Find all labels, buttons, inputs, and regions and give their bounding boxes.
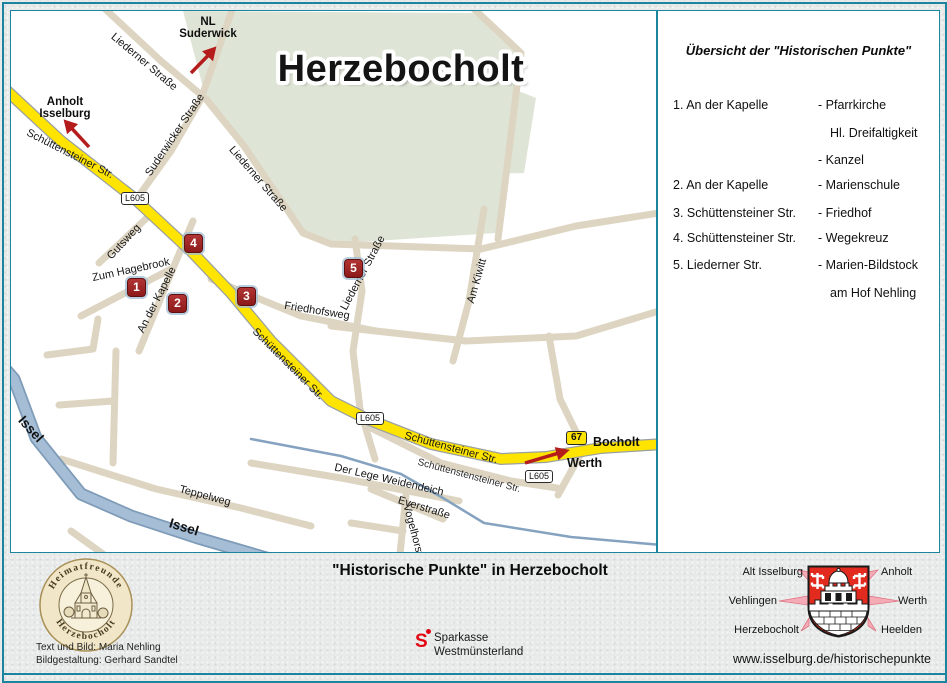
legend-row: 4. Schüttensteiner Str. - Wegekreuz xyxy=(658,231,939,248)
seal-graphic: Heimatfreunde Herzebocholt xyxy=(38,557,134,653)
sponsor-name: Sparkasse Westmünsterland xyxy=(434,632,523,659)
legend-place: 3. Schüttensteiner Str. xyxy=(673,206,796,220)
legend-row: am Hof Nehling xyxy=(658,286,939,303)
destination-line: NL xyxy=(163,16,253,28)
legend-place: 5. Liederner Str. xyxy=(673,258,762,272)
sponsor-line: Westmünsterland xyxy=(434,646,523,660)
crest-label-alt-isselburg: Alt Isselburg xyxy=(729,566,803,578)
legend-desc: am Hof Nehling xyxy=(830,286,916,300)
website-url: www.isselburg.de/historischepunkte xyxy=(723,652,941,666)
crest-label-anholt: Anholt xyxy=(881,566,912,578)
map-marker-4: 4 xyxy=(184,234,203,253)
legend-row: 1. An der Kapelle - Pfarrkirche xyxy=(658,98,939,115)
map-marker-5: 5 xyxy=(344,259,363,278)
legend-row: 2. An der Kapelle - Marienschule xyxy=(658,178,939,195)
legend-place: 2. An der Kapelle xyxy=(673,178,768,192)
crest-label-heelden: Heelden xyxy=(881,624,922,636)
route-badge-b67: 67 xyxy=(566,431,587,445)
crest-label-herzebocholt: Herzebocholt xyxy=(727,624,799,636)
legend-title: Übersicht der "Historischen Punkte" xyxy=(658,43,939,58)
crest-label-vehlingen: Vehlingen xyxy=(723,595,777,607)
green-area-main xyxy=(183,11,521,244)
legend-row: 3. Schüttensteiner Str. - Friedhof xyxy=(658,206,939,223)
legend-row: 5. Liederner Str. - Marien-Bildstock xyxy=(658,258,939,275)
legend-desc: - Marien-Bildstock xyxy=(818,258,918,272)
crest-shield xyxy=(809,567,869,637)
footer-divider xyxy=(2,673,945,675)
route-badge-l605: L605 xyxy=(356,412,384,425)
route-badge-l605: L605 xyxy=(525,470,553,483)
credits: Text und Bild: Maria Nehling Bildgestalt… xyxy=(36,641,178,667)
legend-desc: - Wegekreuz xyxy=(818,231,889,245)
credits-line: Text und Bild: Maria Nehling xyxy=(36,641,178,654)
legend-desc: Hl. Dreifaltigkeit xyxy=(830,126,918,140)
legend-desc: - Kanzel xyxy=(818,153,864,167)
destination-bocholt: Bocholt xyxy=(593,435,640,449)
destination-suderwick: NL Suderwick xyxy=(163,16,253,40)
credits-line: Bildgestaltung: Gerhard Sandtel xyxy=(36,654,178,667)
legend-desc: - Marienschule xyxy=(818,178,900,192)
map-marker-3: 3 xyxy=(237,287,256,306)
map-marker-2: 2 xyxy=(168,294,187,313)
destination-line: Isselburg xyxy=(19,108,111,120)
route-badge-l605: L605 xyxy=(121,192,149,205)
map-title: Herzebocholt xyxy=(278,48,525,90)
map-panel: Herzebocholt Herzebocholt Schüttensteine… xyxy=(10,10,657,553)
map-marker-1: 1 xyxy=(127,278,146,297)
legend-place: 1. An der Kapelle xyxy=(673,98,768,112)
crest-label-werth: Werth xyxy=(898,595,927,607)
poster-page: Herzebocholt Herzebocholt Schüttensteine… xyxy=(0,0,947,683)
isselburg-crest: Alt Isselburg Vehlingen Herzebocholt Anh… xyxy=(723,558,941,650)
sparkasse-s: S xyxy=(415,632,428,652)
legend-panel: Übersicht der "Historischen Punkte" 1. A… xyxy=(657,10,940,553)
poster-title: "Historische Punkte" in Herzebocholt xyxy=(240,562,700,580)
legend-desc: - Friedhof xyxy=(818,206,872,220)
destination-anholt: Anholt Isselburg xyxy=(19,96,111,120)
destination-line: Suderwick xyxy=(163,28,253,40)
sparkasse-dot-icon xyxy=(426,629,431,634)
legend-row: Hl. Dreifaltigkeit xyxy=(658,126,939,143)
destination-werth: Werth xyxy=(567,456,602,470)
legend-desc: - Pfarrkirche xyxy=(818,98,886,112)
destination-line: Anholt xyxy=(19,96,111,108)
legend-row: - Kanzel xyxy=(658,153,939,170)
legend-place: 4. Schüttensteiner Str. xyxy=(673,231,796,245)
sponsor-line: Sparkasse xyxy=(434,632,523,646)
